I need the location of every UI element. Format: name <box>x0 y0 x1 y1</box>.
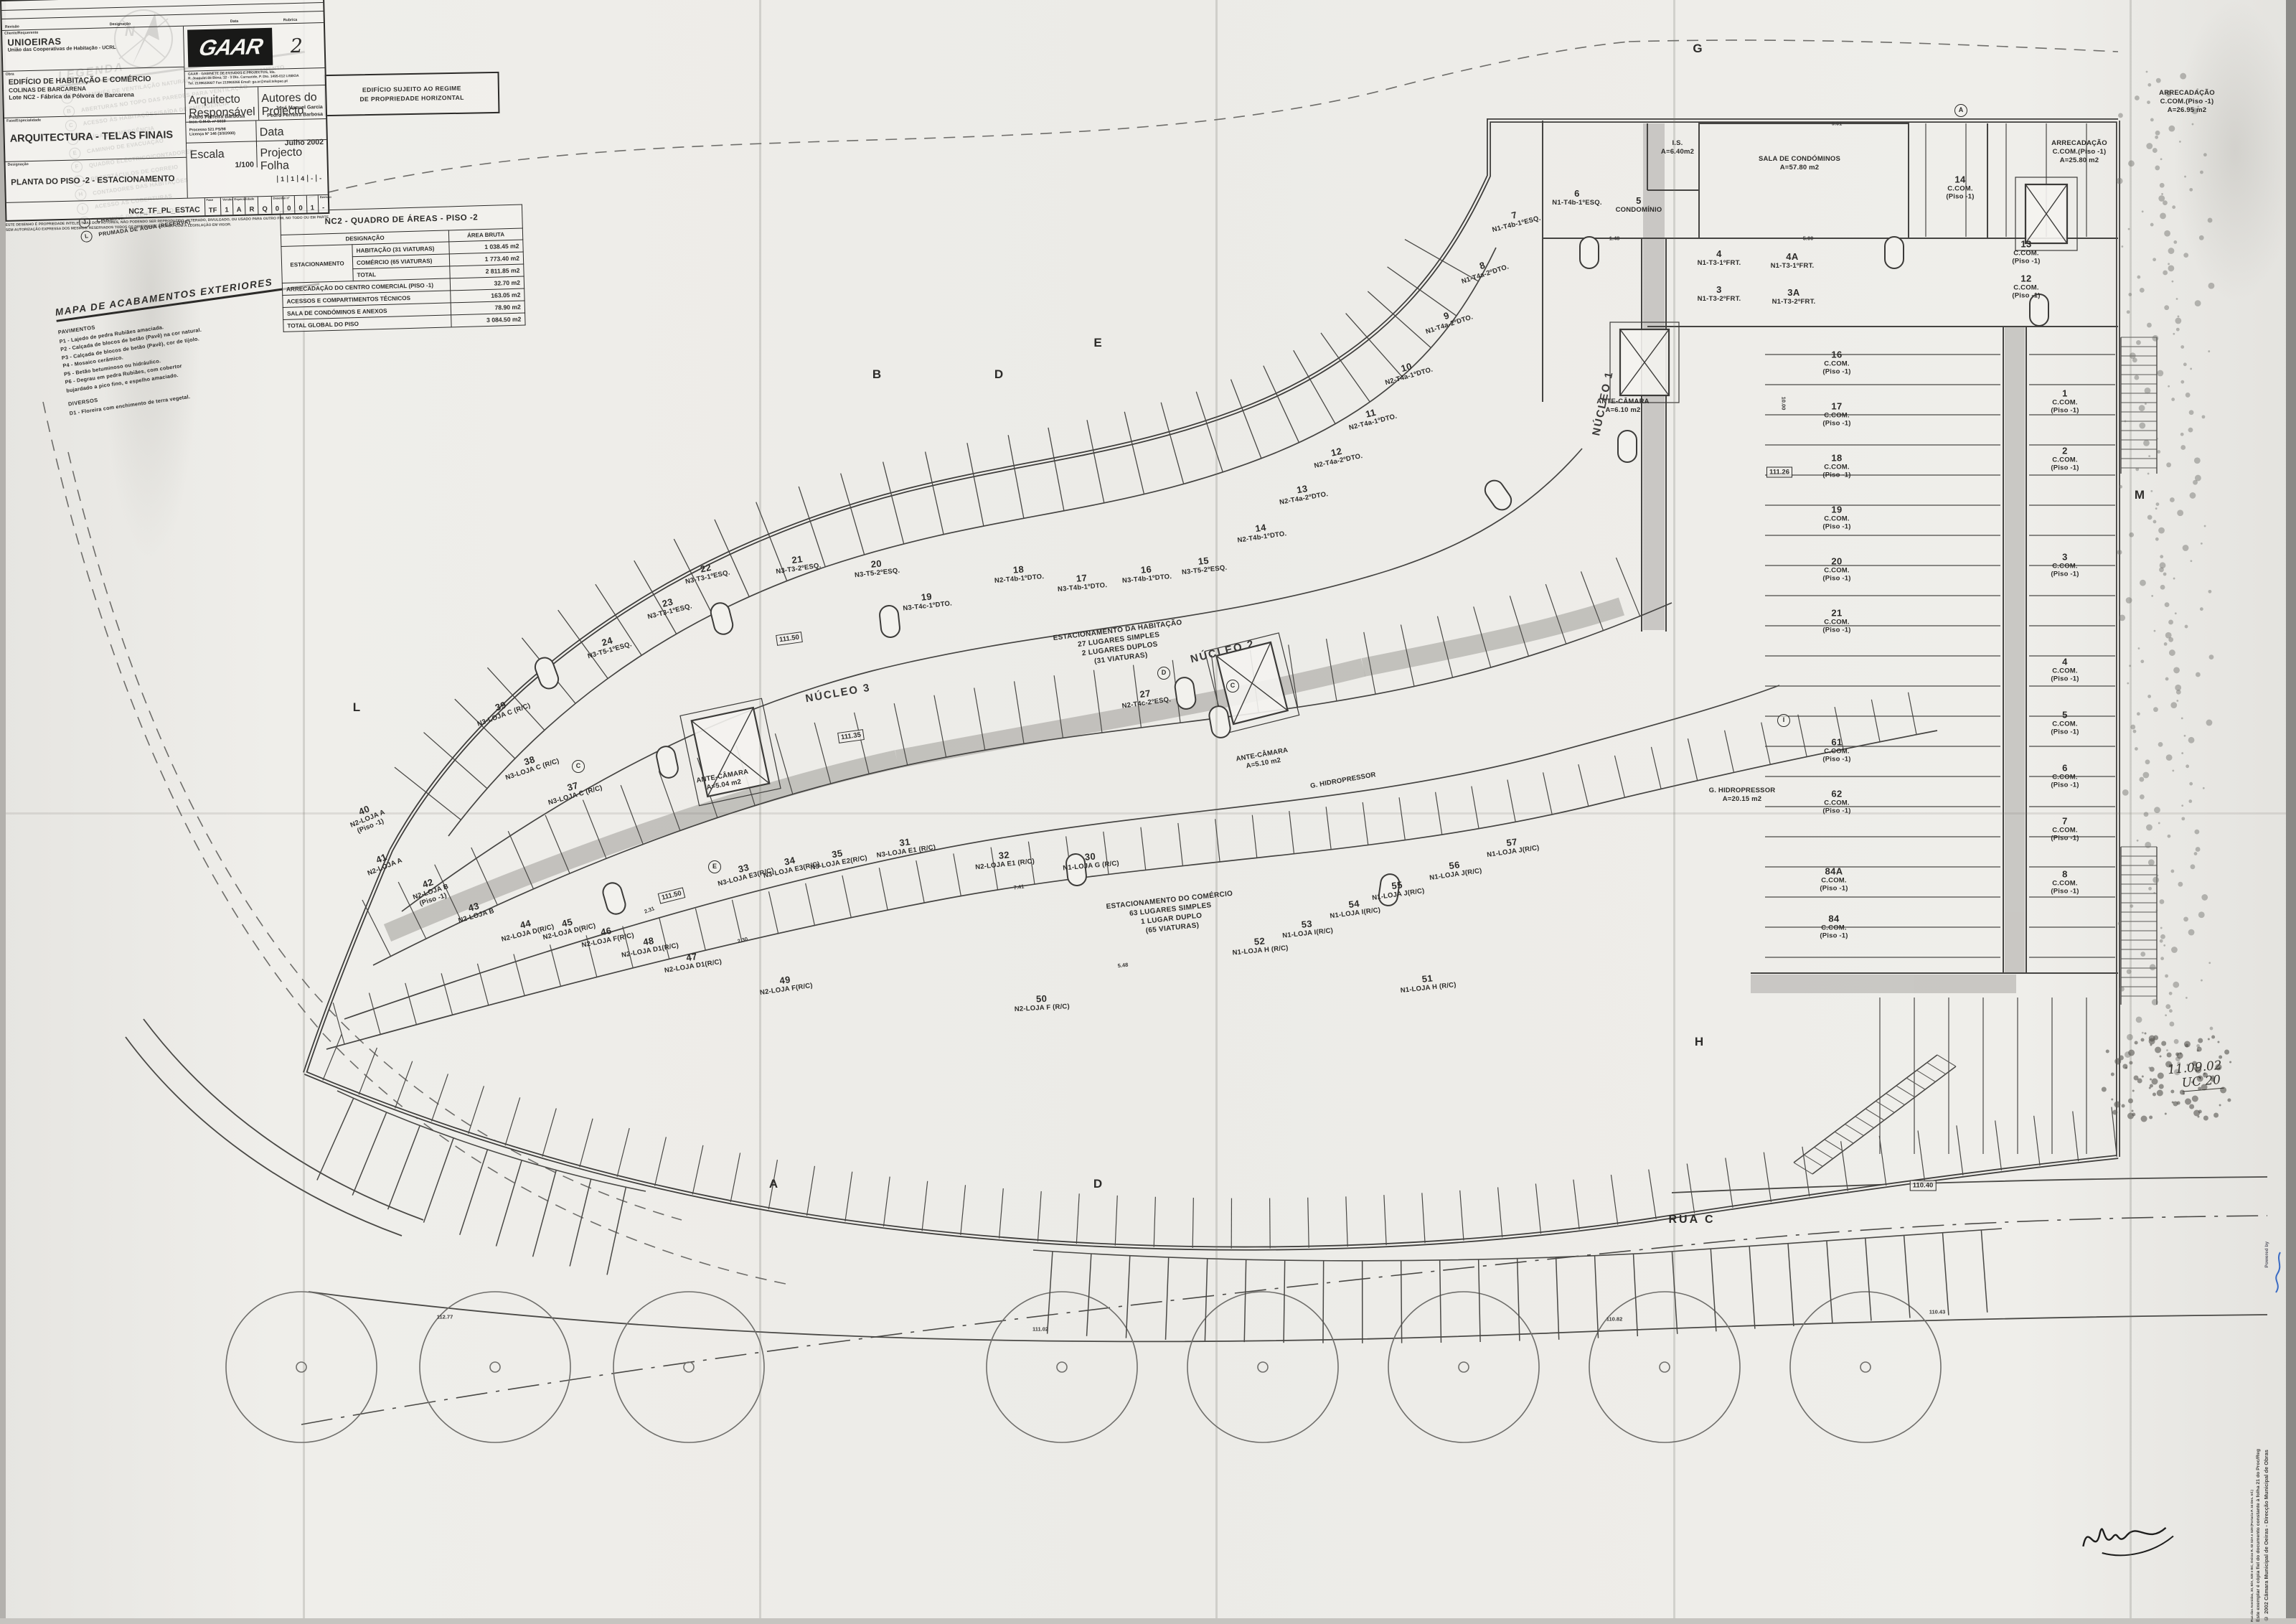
firm-logo-row: GAAR 2 <box>184 23 324 72</box>
road-edge <box>143 1019 423 1220</box>
grid-marker: B <box>872 367 881 382</box>
rev-col-label: Revisão <box>5 24 19 29</box>
parking-stall-label: 8C.COM.(Piso -1) <box>2051 870 2079 896</box>
parking-stall-label: 17C.COM.(Piso -1) <box>1822 402 1850 428</box>
process-date-row: Processo 521 PS/98 Licença Nº 146 (3/3/2… <box>187 119 326 144</box>
room-label: I.S.A=6.40m2 <box>1661 139 1694 156</box>
grid-marker: H <box>1695 1035 1703 1049</box>
scanned-floorplan-sheet: { "north_label": "N", "notice_box": {"li… <box>0 0 2296 1624</box>
parking-stall-label: 3N1-T3-2ºFRT. <box>1698 285 1741 304</box>
sheet-label: Folha <box>260 160 289 173</box>
grid-marker: L <box>353 700 360 715</box>
scale-label: Escala <box>189 149 224 161</box>
project-label: Projecto <box>260 146 302 159</box>
elevation-value: 111.26 <box>1766 467 1792 478</box>
scale-value: 1/100 <box>190 161 254 171</box>
parking-stall-label: 61C.COM.(Piso -1) <box>1822 738 1850 764</box>
stamp-line3: Rua das Avenidas, 30, B/A, 920 e BC, Oei… <box>2250 1410 2254 1622</box>
corridor-shade <box>2005 327 2025 972</box>
rev-col-label: Designação <box>110 22 131 27</box>
ventilation-pill <box>1618 431 1637 462</box>
rev-col-label: Rubrica <box>283 18 297 22</box>
outer-wall-left <box>305 850 391 1073</box>
parking-stall-label: 4C.COM.(Piso -1) <box>2051 657 2079 684</box>
parking-stall-label: 62C.COM.(Piso -1) <box>1822 789 1850 816</box>
elevation-value: 110.40 <box>1910 1181 1937 1191</box>
title-block: Revisão Designação Data Rubrica Cliente/… <box>0 0 330 233</box>
ext-parking-guide <box>1033 1229 2002 1261</box>
room-label: ARRECADAÇÃOC.COM.(Piso -1)A=25.80 m2 <box>2051 139 2107 165</box>
work-cell: Obra EDIFÍCIO DE HABITAÇÃO E COMÉRCIO CO… <box>3 67 185 118</box>
parking-stall-label: 50N2-LOJA F (R/C) <box>1014 992 1070 1014</box>
grid-marker: G <box>1693 42 1702 56</box>
designation-value: PLANTA DO PISO -2 - ESTACIONAMENTO <box>11 174 183 187</box>
circled-key-icon: C <box>572 760 585 773</box>
dimension-value: 5.00 <box>1803 235 1814 242</box>
stall-arc <box>326 731 1937 1049</box>
road-edge <box>309 1292 2267 1341</box>
stall-arc <box>402 449 1582 911</box>
signature-row: Arquitecto Responsável Insc. C.M.O. nº 5… <box>185 85 326 123</box>
dimension-value: 111.02 <box>1032 1326 1048 1333</box>
license-number: Licença Nº 146 (3/3/2000) <box>189 131 253 137</box>
stamp-line1: © 2002 Câmara Municipal de Oeiras - Dire… <box>2263 1410 2269 1622</box>
scale-project-row: Escala 1/100 Projecto Folha 114-- <box>187 140 326 164</box>
dimension-value: 1.48 <box>1609 235 1620 242</box>
legend-key-icon: L <box>80 230 93 243</box>
tree-row <box>226 1292 1941 1442</box>
sala-condominos-walls <box>1699 123 1909 238</box>
signature <box>2083 1526 2174 1557</box>
code-cell: R <box>245 197 258 214</box>
scan-smudge <box>2174 0 2296 301</box>
area-group-label: ESTACIONAMENTO <box>281 245 353 283</box>
outer-wall-top <box>391 121 2118 850</box>
scan-edge <box>0 1618 2296 1624</box>
circled-key-icon: D <box>1157 667 1170 680</box>
ventilation-pill <box>1208 705 1231 739</box>
grid-marker: E <box>1093 336 1101 350</box>
grid-marker: D <box>1093 1177 1102 1191</box>
notice-line2: DE PROPRIEDADE HORIZONTAL <box>359 93 464 104</box>
circled-key-icon: I <box>1777 714 1790 727</box>
parking-stall-label: 6N1-T4b-1ºESQ. <box>1552 189 1601 207</box>
designation-cell: Designação PLANTA DO PISO -2 - ESTACIONA… <box>6 158 188 202</box>
room-label: ARRECADAÇÃOC.COM.(Piso -1)A=26.95 m2 <box>2159 89 2215 115</box>
parking-stall-label: 3AN1-T3-2ºFRT. <box>1772 288 1816 306</box>
room-label: SALA DE CONDÓMINOSA=57.80 m2 <box>1759 155 1840 172</box>
grid-marker: M <box>2135 488 2145 502</box>
phase-value: ARQUITECTURA - TELAS FINAIS <box>10 129 182 145</box>
site-boundary-dashed <box>309 42 1629 197</box>
parking-stall-label: 13C.COM.(Piso -1) <box>2012 240 2040 266</box>
ventilation-pill <box>1580 237 1599 268</box>
stair-core <box>1610 322 1679 403</box>
parking-stall-label: 21C.COM.(Piso -1) <box>1822 609 1850 635</box>
project-number-boxes: 114-- <box>260 174 324 183</box>
rev-col-label: Data <box>230 19 238 24</box>
powered-by-mark: Powered by <box>2264 1242 2269 1267</box>
parking-stall-label: 20C.COM.(Piso -1) <box>1822 557 1850 583</box>
street-name: RUA C <box>1668 1214 1715 1226</box>
firm-logo: GAAR <box>187 28 273 67</box>
parking-stall-label: 4N1-T3-1ºFRT. <box>1698 249 1741 268</box>
pen-mark <box>2276 1252 2280 1292</box>
parking-stall-label: 18C.COM.(Piso -1) <box>1822 454 1850 480</box>
stamp-line2: Este exemplar é cópia fiel do documento … <box>2256 1410 2261 1622</box>
dimension-value: 110.43 <box>1929 1309 1946 1315</box>
fold-line <box>0 812 2296 815</box>
circled-key-icon: E <box>708 860 721 873</box>
designation-label: Designação <box>8 162 29 167</box>
handwritten-date: 11.09.02 UC 20 <box>2167 1059 2224 1093</box>
parking-stall-label: 6C.COM.(Piso -1) <box>2051 764 2079 790</box>
parking-stall-label: 16C.COM.(Piso -1) <box>1822 350 1850 377</box>
phase-cell: Fase/Especialidade ARQUITECTURA - TELAS … <box>4 114 187 162</box>
dimension-value: 9.01 <box>1832 121 1843 127</box>
phase-label: Fase/Especialidade <box>6 118 41 123</box>
author-name: José Manuel Garcia <box>276 105 323 111</box>
client-label: Cliente/Requerente <box>4 31 38 36</box>
road-edge <box>1672 1177 2267 1193</box>
outer-wall-bottom <box>305 1073 2118 1249</box>
ventilation-pill <box>1885 237 1904 268</box>
parking-stall-label: 2C.COM.(Piso -1) <box>2051 446 2079 473</box>
dimension-value: 110.82 <box>1606 1316 1623 1323</box>
parking-stall-label: 84AC.COM.(Piso -1) <box>1820 867 1848 893</box>
grid-marker: D <box>994 367 1003 382</box>
dimension-value: 10.00 <box>1781 397 1787 410</box>
scan-edge <box>0 0 6 1624</box>
parking-stall-label: 84C.COM.(Piso -1) <box>1820 914 1848 941</box>
parking-stall-label: 1C.COM.(Piso -1) <box>2051 389 2079 416</box>
parking-stall-label: 7C.COM.(Piso -1) <box>2051 817 2079 843</box>
walkway-band <box>1363 606 1622 667</box>
parking-stall-label: 14C.COM.(Piso -1) <box>1946 175 1974 202</box>
scan-edge <box>2286 0 2296 1624</box>
code-cell: Versão1 <box>220 197 232 215</box>
code-cell: FaseTF <box>204 198 220 216</box>
author-name: Pedro Ferreira Barbosa <box>267 112 323 118</box>
area-row-value: 3 084.50 m2 <box>451 313 525 327</box>
parking-stall-label: 12C.COM.(Piso -1) <box>2012 274 2040 301</box>
code-cell: EspecialidadeA <box>232 197 245 215</box>
code-cell: Revisão- <box>318 195 329 212</box>
ventilation-pill <box>1482 477 1515 514</box>
municipal-stamp: Rua das Avenidas, 30, B/A, 920 e BC, Oei… <box>2250 1410 2269 1622</box>
parking-stall-label: 19C.COM.(Piso -1) <box>1822 505 1850 532</box>
parking-stall-label: 4AN1-T3-1ºFRT. <box>1771 252 1815 271</box>
notice-box: EDIFÍCIO SUJEITO AO REGIME DE PROPRIEDAD… <box>324 72 500 116</box>
corridor-shade <box>1751 975 2016 993</box>
handwritten-sheet-number: 2 <box>273 34 321 58</box>
code-cell: 1 <box>306 195 318 212</box>
code-cell: Desenho nº0 <box>270 196 283 213</box>
parking-stall-label: 5CONDOMÍNIO <box>1616 196 1662 215</box>
parking-stall-label: 3C.COM.(Piso -1) <box>2051 553 2079 579</box>
room-label: G. HIDROPRESSORA=20.15 m2 <box>1709 787 1776 804</box>
ventilation-pill <box>879 605 900 638</box>
site-boundary-dashed <box>68 452 682 1220</box>
client-cell: Cliente/Requerente UNIOEIRAS União das C… <box>2 27 184 72</box>
parking-stall-label: 5C.COM.(Piso -1) <box>2051 710 2079 737</box>
date-label: Data <box>260 126 284 139</box>
walkway-band <box>897 667 1363 759</box>
ventilation-pill <box>601 881 627 916</box>
work-label: Obra <box>5 72 14 77</box>
code-cell: 0 <box>294 196 306 213</box>
ventilation-pill <box>709 601 735 637</box>
ventilation-pill <box>655 745 680 779</box>
dimension-value: 5.48 <box>1117 962 1128 969</box>
circled-key-icon: C <box>1226 680 1239 693</box>
grid-marker: A <box>769 1177 778 1191</box>
code-cell: Q <box>258 197 271 214</box>
code-cell: 0 <box>283 196 295 213</box>
circled-key-icon: A <box>1954 104 1967 117</box>
dimension-value: 112.77 <box>437 1314 453 1320</box>
